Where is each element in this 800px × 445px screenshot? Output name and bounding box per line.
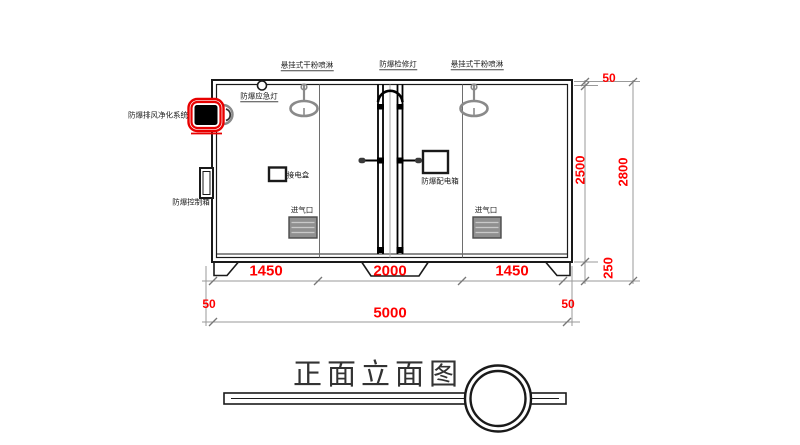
- dim-bottom-left-1450: 1450: [249, 264, 282, 279]
- air-inlet-left-icon: [289, 217, 317, 238]
- distribution-box-icon: [423, 151, 448, 173]
- dim-bottom-center-2000: 2000: [373, 264, 406, 279]
- sprinkler-right-icon: [461, 84, 488, 116]
- emergency-light-icon: [258, 81, 267, 90]
- label-emergency-light: 防爆应急灯: [240, 92, 278, 102]
- junction-box-icon: [269, 168, 286, 182]
- dim-base-250: 250: [602, 257, 615, 279]
- label-distribution-box: 防爆配电箱: [421, 177, 459, 185]
- label-sprinkler-right: 悬挂式干粉喷淋: [451, 60, 504, 70]
- dimension-lines: [202, 80, 640, 326]
- label-maintenance-light: 防爆检修灯: [379, 60, 417, 70]
- label-control-box: 防爆控制箱: [172, 198, 210, 206]
- dim-total-width-5000: 5000: [373, 306, 406, 321]
- drawing-title: 正面立面图: [293, 351, 463, 393]
- control-box-icon: [200, 168, 213, 198]
- dim-bottom-right-1450: 1450: [495, 264, 528, 279]
- sprinkler-left-icon: [291, 84, 318, 116]
- label-air-inlet-left: 进气口: [291, 206, 314, 214]
- container-shell: [212, 80, 572, 262]
- dim-interior-2500: 2500: [574, 156, 587, 185]
- air-inlet-right-icon: [473, 217, 501, 238]
- label-air-inlet-right: 进气口: [475, 206, 498, 214]
- label-exhaust-purification-system: 防爆排风净化系统: [128, 111, 188, 119]
- elevation-drawing-canvas: 悬挂式干粉喷淋 防爆检修灯 悬挂式干粉喷淋 防爆应急灯 防爆排风净化系统 防爆控…: [0, 0, 800, 445]
- label-sprinkler-left: 悬挂式干粉喷淋: [281, 61, 334, 71]
- dim-roof-50: 50: [602, 72, 615, 84]
- dim-offset-right-50: 50: [561, 298, 574, 310]
- dim-total-height-2800: 2800: [617, 158, 630, 187]
- label-junction-box: 接电盒: [287, 171, 310, 179]
- exhaust-purification-unit: [189, 99, 233, 134]
- dim-offset-left-50: 50: [202, 298, 215, 310]
